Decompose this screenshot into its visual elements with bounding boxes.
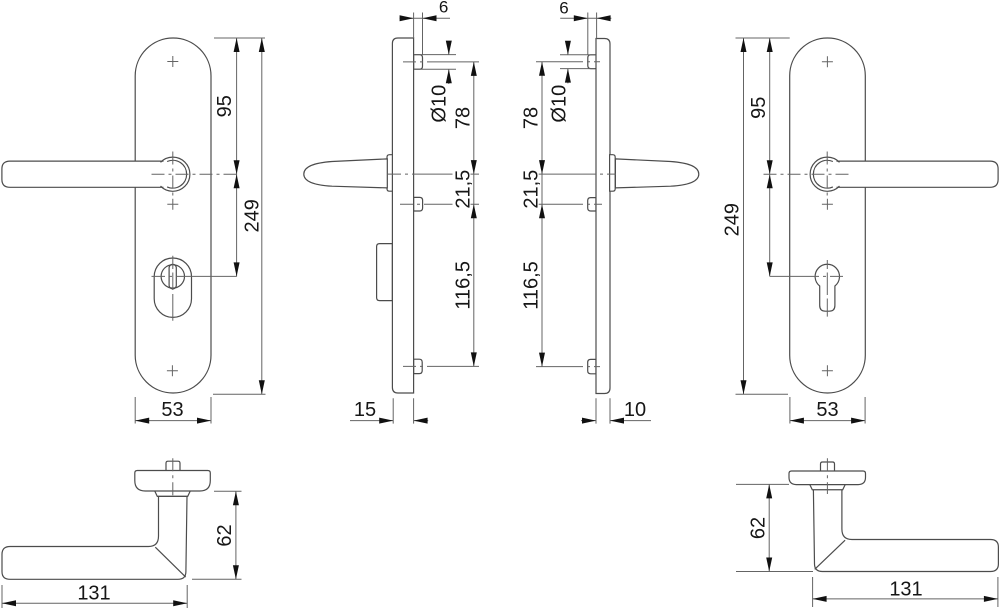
svg-text:62: 62	[214, 524, 236, 546]
svg-text:6: 6	[439, 0, 448, 16]
svg-text:6: 6	[559, 0, 568, 17]
svg-text:15: 15	[354, 399, 376, 421]
svg-text:78: 78	[521, 107, 543, 129]
svg-text:10: 10	[624, 399, 646, 421]
svg-text:Ø10: Ø10	[548, 85, 570, 123]
svg-text:53: 53	[161, 399, 183, 421]
svg-text:21,5: 21,5	[521, 170, 543, 209]
svg-text:53: 53	[816, 399, 838, 421]
svg-text:78: 78	[452, 107, 474, 129]
svg-text:95: 95	[214, 95, 236, 117]
svg-text:62: 62	[748, 517, 770, 539]
svg-text:131: 131	[889, 578, 922, 600]
svg-text:116,5: 116,5	[452, 261, 474, 310]
svg-text:Ø10: Ø10	[429, 85, 451, 123]
svg-text:249: 249	[241, 199, 263, 232]
svg-text:131: 131	[77, 583, 110, 605]
svg-text:21,5: 21,5	[452, 170, 474, 209]
svg-text:95: 95	[748, 97, 770, 119]
svg-text:116,5: 116,5	[521, 261, 543, 310]
svg-text:249: 249	[722, 203, 744, 236]
